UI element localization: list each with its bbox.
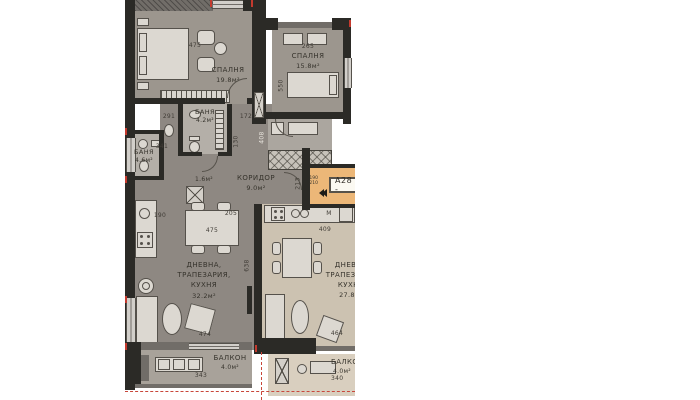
bed-pillow <box>139 33 147 52</box>
dim-label: 291 <box>157 113 181 120</box>
toilet-icon <box>164 124 174 137</box>
boundary-line <box>261 352 262 400</box>
room-label: ДНЕВНА <box>321 261 355 270</box>
stove-icon <box>271 207 285 221</box>
dim-label: 475 <box>198 227 226 234</box>
chair <box>272 242 281 255</box>
room-label: БАЛКОН <box>205 354 255 363</box>
dim-label: 409 <box>311 226 339 233</box>
room-label: СПАЛНЯ <box>277 52 339 61</box>
survey-tick <box>125 176 127 183</box>
window <box>344 58 352 88</box>
dim-label: 130 <box>233 131 240 153</box>
ceiling-fan-icon <box>142 282 150 290</box>
dining-table <box>282 238 312 278</box>
dim-label: 205 <box>217 210 245 217</box>
wall <box>227 104 232 156</box>
dim-label: 213 <box>295 173 302 195</box>
coffee-table <box>162 303 182 335</box>
floor-plan: 190 210 А28 - СПАЛНЯ 19.8м² 475 291 БАНЯ… <box>125 0 355 400</box>
divider-wall <box>254 204 262 348</box>
chair <box>313 242 322 255</box>
wall <box>247 98 252 104</box>
room-label: БАНЯ <box>185 108 225 116</box>
room-area: 19.8м² <box>203 76 253 84</box>
room-area: 4.2м² <box>185 117 225 124</box>
room-area: 4.0м² <box>333 368 355 375</box>
tv-unit <box>247 286 252 314</box>
burner-dot <box>274 216 277 219</box>
chair <box>272 261 281 274</box>
survey-tick <box>125 343 127 350</box>
wall <box>316 346 355 351</box>
stove-icon <box>137 232 153 248</box>
burner-dot <box>274 210 277 213</box>
unit-badge-label: А28 - <box>335 176 355 194</box>
survey-tick <box>349 20 351 27</box>
bench-cushion <box>158 359 170 370</box>
room-label: СПАЛНЯ <box>203 66 253 75</box>
chair <box>191 202 205 211</box>
kitchen-sink-icon <box>300 209 309 218</box>
dim-label: 408 <box>259 127 266 149</box>
wall <box>254 338 316 354</box>
room-label: ТРАПЕЗАРИЯ, <box>165 271 243 280</box>
room-area: 15.8м² <box>277 62 339 70</box>
dim-label: 638 <box>244 254 251 278</box>
survey-tick <box>125 296 127 303</box>
dim-label: 172 <box>233 113 259 120</box>
survey-tick <box>251 0 253 7</box>
unit-badge[interactable]: А28 - <box>329 177 355 193</box>
bed-pillow <box>329 75 337 95</box>
dim-label: 343 <box>187 372 215 379</box>
fridge-label: М <box>323 210 335 217</box>
room-area: 9.0м² <box>223 184 289 192</box>
chair <box>217 245 231 254</box>
fridge <box>339 206 353 222</box>
burner-dot <box>280 210 283 213</box>
wall <box>278 22 332 28</box>
room-label: КУХНЯ <box>321 281 355 290</box>
nightstand <box>137 82 149 90</box>
window <box>126 298 136 342</box>
room-label: ДНЕВНА, <box>165 261 243 270</box>
dim-label: 550 <box>278 74 285 98</box>
burner-dot <box>140 242 143 245</box>
room-area: 4.6м² <box>127 157 161 164</box>
dim-label: 340 <box>331 375 355 382</box>
dim-label: 464 <box>323 330 351 337</box>
room-label: КОРИДОР <box>223 174 289 183</box>
dim-label: 190 <box>147 212 173 219</box>
room-label: ТРАПЕЗАРИЯ <box>321 271 355 280</box>
entry-arrow-icon <box>319 182 327 201</box>
wall <box>135 176 164 180</box>
wall <box>178 152 202 156</box>
burner-dot <box>147 242 150 245</box>
nightstand <box>137 18 149 26</box>
side-table <box>214 42 227 55</box>
survey-tick <box>125 128 127 135</box>
burner-dot <box>140 235 143 238</box>
burner-dot <box>147 235 150 238</box>
chair <box>191 245 205 254</box>
wall <box>218 152 232 156</box>
wall <box>135 342 141 388</box>
entry-door-size: 190 210 <box>308 177 318 187</box>
balcony-door-window <box>189 343 239 350</box>
wall <box>266 112 351 119</box>
floor-plan-canvas: 190 210 А28 - СПАЛНЯ 19.8м² 475 291 БАНЯ… <box>0 0 700 400</box>
balcony-rail <box>135 384 252 388</box>
burner-dot <box>280 216 283 219</box>
wall <box>310 204 355 208</box>
kitchen-sink-icon <box>291 209 300 218</box>
survey-tick <box>210 0 212 7</box>
washer-icon <box>275 358 289 384</box>
top-wall <box>135 0 213 11</box>
dim-label: 474 <box>191 331 219 338</box>
survey-tick <box>255 345 257 352</box>
room-label: БАНЯ <box>127 148 161 156</box>
room-label: БАЛКОН <box>331 358 355 367</box>
bench-cushion <box>173 359 185 370</box>
room-area: 27.8м² <box>321 291 355 299</box>
bench-cushion <box>188 359 200 370</box>
sofa <box>265 294 285 344</box>
wall <box>266 18 278 30</box>
wall <box>178 104 183 156</box>
dim-label: 475 <box>181 42 209 49</box>
room-area: 4.0м² <box>205 364 255 371</box>
balcony-chair <box>297 364 307 374</box>
room-area: 32.2м² <box>165 292 243 300</box>
entry-door-height: 210 <box>309 181 318 186</box>
room-label: КУХНЯ <box>165 281 243 290</box>
dim-label: 265 <box>293 43 323 50</box>
room-area: 1.6м² <box>189 176 219 183</box>
bed-pillow <box>139 56 147 75</box>
coffee-table <box>291 300 309 334</box>
boundary-line <box>125 391 355 392</box>
sofa <box>136 296 158 344</box>
